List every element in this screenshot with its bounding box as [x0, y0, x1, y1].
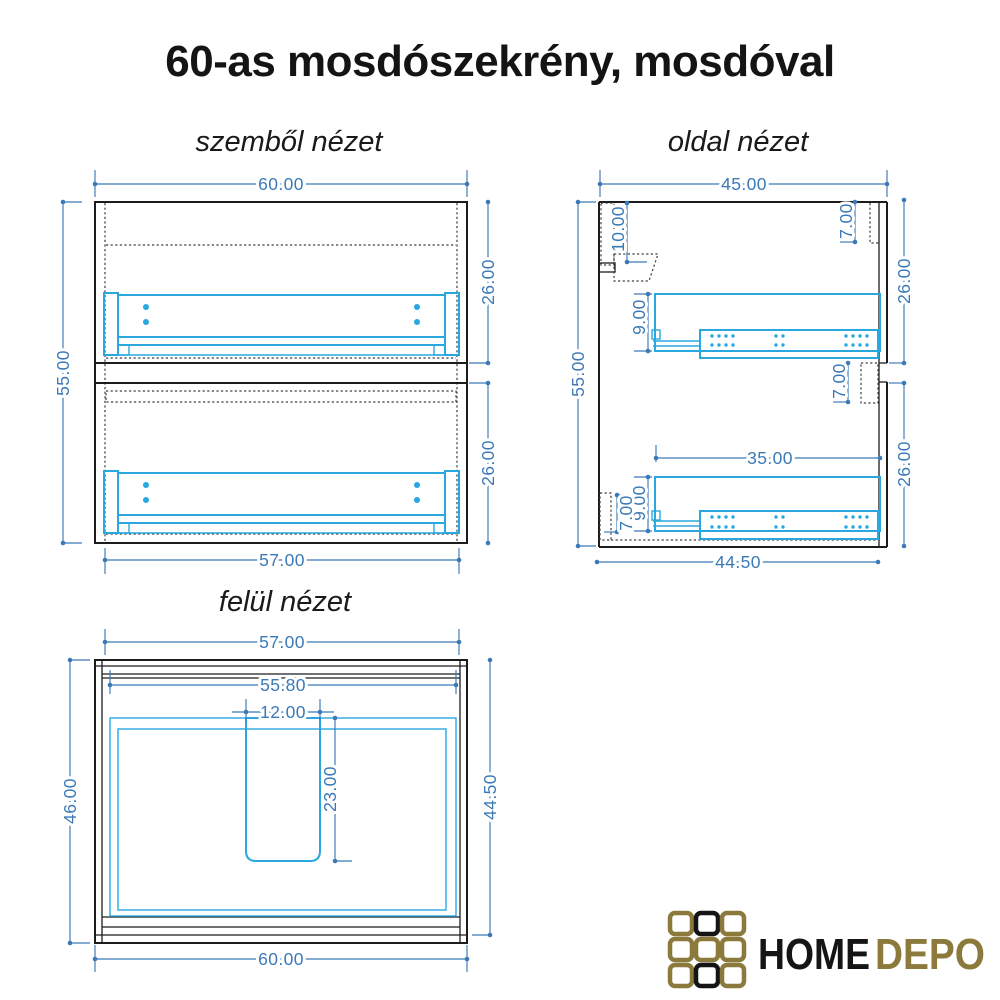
side-dim-mid-back-panel-label: 7.00: [829, 363, 849, 399]
top-dim-depth-right-label: 44.50: [480, 774, 500, 820]
side-dim-plinth-label: 7.00: [616, 495, 636, 531]
top-dim-width-bottom: 60.00: [93, 945, 470, 972]
side-dim-height-left: 55.00: [568, 200, 596, 549]
homedepo-logo: HOME DEPO: [670, 913, 985, 986]
front-dim-lower-section: 26.00: [469, 381, 498, 546]
front-view-label: szemből nézet: [196, 126, 385, 158]
front-view: szemből nézet: [53, 126, 498, 574]
side-dim-upper-section: 26.00: [889, 198, 914, 366]
side-dim-depth-top: 45.00: [598, 170, 890, 197]
side-upper-slide-holes: [710, 334, 868, 346]
side-dim-drawer-depth-label: 35.00: [747, 448, 793, 468]
front-lower-drawer: [104, 471, 459, 533]
front-dim-width-top: 60.00: [93, 170, 470, 197]
technical-drawing: 60-as mosdószekrény, mosdóval szemből né…: [0, 0, 1000, 1000]
side-dim-lower-section: 26.00: [889, 381, 914, 549]
side-dim-drawer-depth: 35.00: [654, 445, 883, 468]
side-dim-upper-rail: 9.00: [629, 292, 652, 354]
side-lower-drawer: [652, 477, 880, 539]
side-lower-slide-holes: [710, 515, 868, 528]
top-dim-width-top: 57.00: [103, 629, 462, 655]
side-dim-mid-back-panel: 7.00: [829, 361, 850, 405]
logo-text-depo: DEPO: [875, 930, 985, 979]
top-basin-outline: [110, 718, 456, 916]
front-dim-height-label: 55.00: [53, 350, 73, 396]
front-dim-lower-section-label: 26.00: [478, 440, 498, 486]
front-upper-drawer-screws: [143, 304, 420, 325]
side-dim-depth-top-label: 45.00: [721, 174, 767, 194]
logo-text-home: HOME: [758, 930, 870, 979]
side-dim-height-label: 55.00: [568, 351, 588, 397]
side-dim-top-back-panel-label: 7.00: [836, 203, 856, 239]
logo-grid-icon: [670, 913, 744, 986]
side-dim-plinth: 7.00: [604, 493, 636, 535]
side-top-front-rail-dotted: [870, 203, 879, 243]
top-dim-cutout-depth: 23.00: [320, 716, 352, 864]
top-dim-cutout-width-label: 12.00: [260, 702, 306, 722]
side-dim-sink-cutout-label: 10.00: [608, 206, 628, 252]
side-upper-drawer: [652, 294, 880, 358]
front-lower-drawer-screws: [143, 482, 420, 503]
side-dim-depth-bottom-label: 44.50: [715, 552, 761, 572]
top-drain-cutout: [246, 718, 320, 861]
side-dim-lower-section-label: 26.00: [894, 441, 914, 487]
front-dim-width-top-label: 60.00: [258, 174, 304, 194]
side-dim-upper-section-label: 26.00: [894, 258, 914, 304]
front-mid-shelf-dotted: [106, 391, 456, 402]
top-view-label: felül nézet: [219, 586, 353, 618]
top-dim-cutout-depth-label: 23.00: [320, 766, 340, 812]
top-dim-width-bottom-label: 60.00: [258, 949, 304, 969]
top-dim-depth-left: 46.00: [60, 658, 90, 946]
front-dim-upper-section-label: 26.00: [478, 259, 498, 305]
drawing-canvas: 60-as mosdószekrény, mosdóval szemből né…: [0, 0, 1000, 1000]
side-view: oldal nézet: [568, 126, 914, 572]
side-siphon-dotted: [614, 254, 658, 281]
front-dim-width-bottom-label: 57.00: [259, 550, 305, 570]
top-dim-depth-left-label: 46.00: [60, 778, 80, 824]
side-plinth-dotted: [600, 493, 611, 540]
page-title: 60-as mosdószekrény, mosdóval: [165, 37, 834, 86]
top-dim-inner-width-label: 55.80: [260, 675, 306, 695]
top-dim-depth-right: 44.50: [472, 658, 500, 938]
front-dim-height-left: 55.00: [53, 200, 82, 546]
side-mid-rail-dotted: [861, 363, 878, 403]
side-dim-top-back-panel: 7.00: [836, 200, 857, 245]
side-view-label: oldal nézet: [668, 126, 810, 158]
side-dim-depth-bottom: 44.50: [595, 552, 881, 572]
front-dim-width-bottom: 57.00: [103, 548, 462, 574]
top-dim-width-top-label: 57.00: [259, 632, 305, 652]
front-carcass: [95, 202, 467, 543]
side-dim-upper-rail-label: 9.00: [629, 299, 649, 335]
front-upper-drawer: [104, 293, 459, 355]
front-cabinet-outline: [95, 202, 467, 543]
front-dim-upper-section: 26.00: [469, 200, 498, 366]
top-view: felül nézet 57.00 55.80: [60, 586, 500, 972]
